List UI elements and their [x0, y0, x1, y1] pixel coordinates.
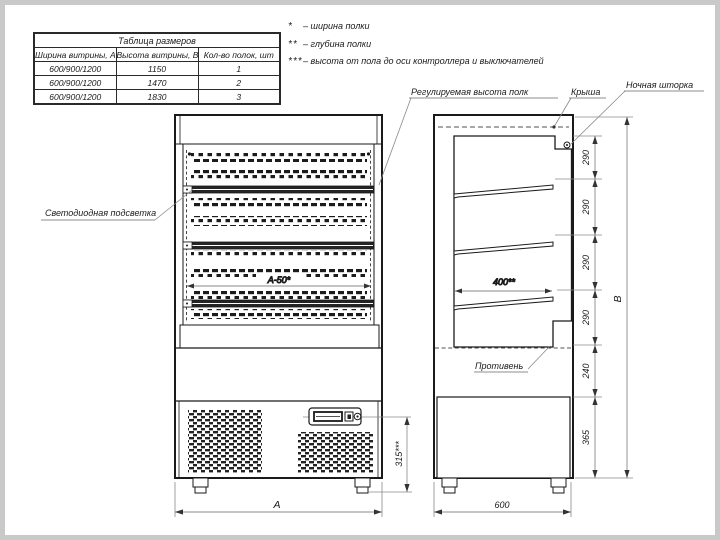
chain-dim-5: 240 [581, 363, 591, 379]
chain-dim-3: 290 [581, 255, 591, 271]
shelf-height-leader [379, 98, 411, 185]
size-table-col-shelves: Кол-во полок, шт [198, 48, 280, 62]
vent-grille-left [188, 410, 262, 473]
side-view: 400** [434, 115, 573, 493]
side-feet [442, 478, 566, 493]
size-table: Таблица размеров Ширина витрины, А Высот… [33, 32, 281, 105]
inner-width-value: А-50* [267, 275, 291, 285]
size-table-col-width: Ширина витрины, А [34, 48, 116, 62]
night-curtain-label: Ночная шторка [626, 80, 693, 90]
cell-shelves-3: 3 [198, 90, 280, 105]
cell-shelves-1: 1 [198, 62, 280, 76]
cell-height-2: 1470 [116, 76, 198, 90]
total-height-value: В [612, 295, 624, 302]
chain-dim-4: 290 [581, 310, 591, 326]
controller-panel [303, 408, 411, 425]
front-width-value: А [272, 499, 280, 511]
cell-width-1: 600/900/1200 [34, 62, 116, 76]
shelf-depth-value: 400** [493, 277, 516, 287]
roof-label: Крыша [571, 87, 600, 97]
tray-label: Противень [475, 361, 523, 371]
chain-dim-1: 290 [581, 150, 591, 166]
note-shelf-depth: ** – глубина полки [288, 39, 544, 57]
cell-height-1: 1150 [116, 62, 198, 76]
shelf-height-label: Регулируемая высота полк [411, 87, 529, 97]
chain-dim-6: 365 [581, 429, 591, 445]
cell-shelves-2: 2 [198, 76, 280, 90]
size-table-col-height: Высота витрины, В [116, 48, 198, 62]
size-table-title: Таблица размеров [34, 33, 280, 48]
table-row: 600/900/1200 1470 2 [34, 76, 280, 90]
front-feet [193, 478, 370, 493]
table-row: 600/900/1200 1830 3 [34, 90, 280, 105]
note-marker: *** [288, 56, 303, 67]
note-marker: * [288, 21, 303, 32]
drawing-sheet: А-50* [0, 0, 720, 540]
side-depth-value: 600 [494, 500, 509, 510]
led-label: Светодиодная подсветка [45, 208, 156, 218]
note-shelf-width: * – ширина полки [288, 21, 544, 39]
chain-dim-2: 290 [581, 199, 591, 215]
note-controller-height: *** – высота от пола до оси контроллера … [288, 56, 544, 74]
table-row: 600/900/1200 1150 1 [34, 62, 280, 76]
cell-width-2: 600/900/1200 [34, 76, 116, 90]
controller-height-value: 315*** [394, 441, 404, 467]
note-marker: ** [288, 39, 303, 50]
cell-width-3: 600/900/1200 [34, 90, 116, 105]
vent-grille-right [298, 432, 373, 473]
front-view: А-50* [175, 115, 411, 493]
display-cavity [454, 136, 572, 347]
cell-height-3: 1830 [116, 90, 198, 105]
notes-legend: * – ширина полки ** – глубина полки *** … [288, 21, 544, 74]
